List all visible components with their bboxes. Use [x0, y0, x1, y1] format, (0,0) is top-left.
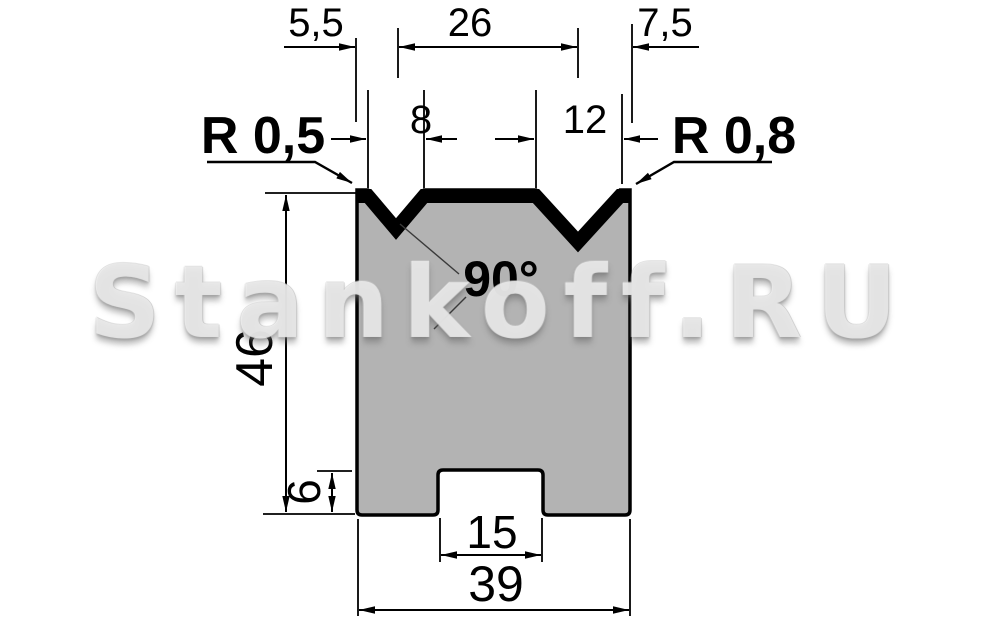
dim-slot-width: 15 [440, 506, 542, 562]
radius-right-value: R 0,8 [672, 107, 796, 165]
dim-die-height: 46 [226, 193, 356, 514]
dim-slot-width-value: 15 [466, 506, 517, 558]
dim-offset-left: 5,5 [284, 1, 355, 47]
dim-die-height-value: 46 [226, 329, 284, 387]
radius-left-leader [207, 162, 352, 183]
die-cross-section-drawing: 5,5 26 7,5 8 [0, 0, 1000, 618]
radius-left-value: R 0,5 [201, 107, 325, 165]
dim-top-offsets: 5,5 26 7,5 [284, 1, 699, 123]
dim-vee-centers: 26 [399, 1, 577, 47]
dim-vee-openings: 8 12 [331, 90, 658, 188]
dim-shoulder-height-value: 6 [278, 479, 330, 505]
dim-v1-opening: 8 [331, 98, 457, 142]
dim-offset-right: 7,5 [633, 1, 699, 47]
drawing-canvas: 5,5 26 7,5 8 [0, 0, 1000, 618]
callout-radius-left: R 0,5 [201, 107, 352, 183]
dim-v2-opening-value: 12 [563, 98, 608, 142]
dim-v2-opening: 12 [495, 98, 658, 142]
dim-shoulder-height: 6 [278, 471, 352, 512]
dim-offset-right-value: 7,5 [637, 1, 693, 45]
die-profile [357, 190, 630, 515]
dim-offset-left-value: 5,5 [288, 1, 344, 45]
callout-radius-right: R 0,8 [636, 107, 796, 184]
dim-overall-width-value: 39 [468, 556, 524, 612]
vee-angle-value: 90° [463, 251, 539, 307]
dim-v1-opening-value: 8 [410, 98, 432, 142]
dim-vee-centers-value: 26 [448, 1, 493, 45]
radius-right-leader [636, 162, 772, 184]
